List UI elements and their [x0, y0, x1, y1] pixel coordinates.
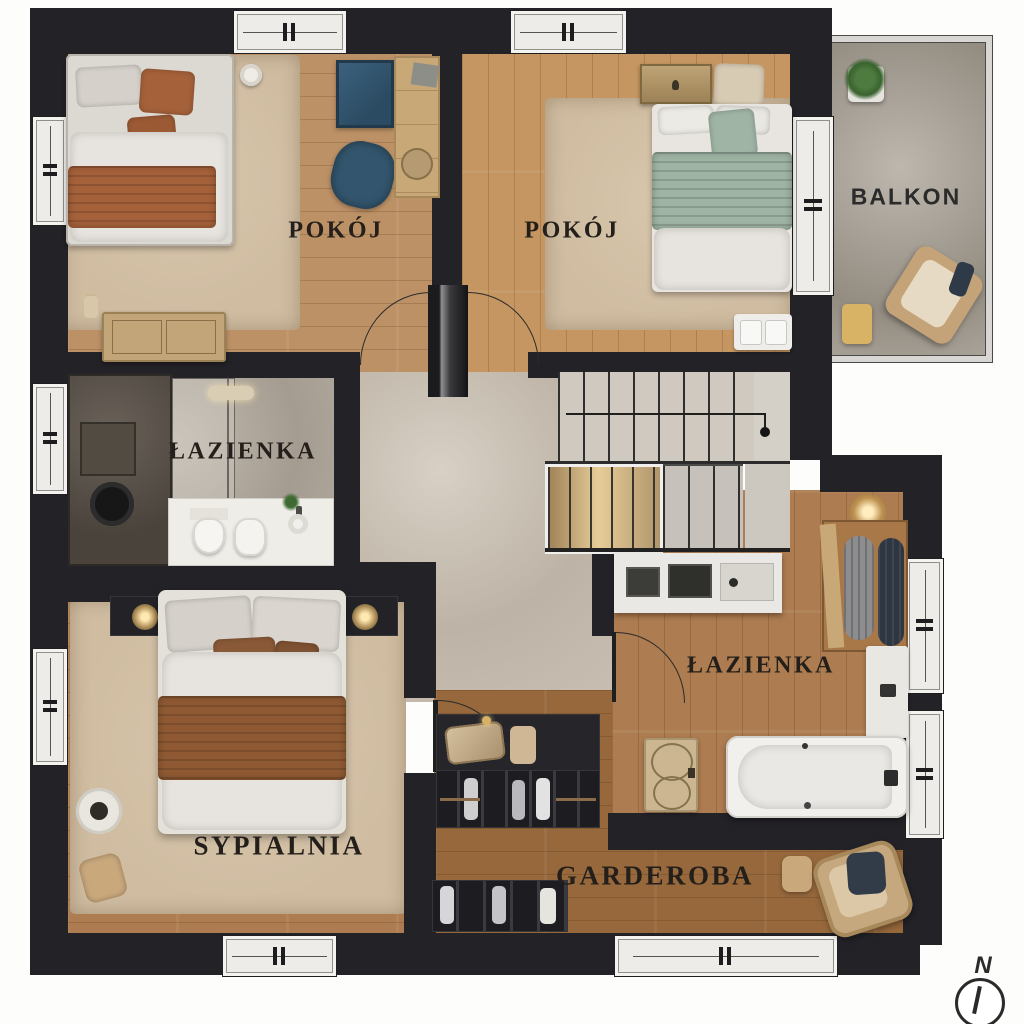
- shelf-plank-line: [556, 798, 596, 801]
- lamp-gold-icon: [132, 604, 158, 630]
- garderoba-vanity: [436, 714, 600, 772]
- pouf-cylinder: [782, 856, 812, 892]
- console-panel-dark-2: [668, 564, 712, 598]
- hanging-clothes-gray: [844, 536, 874, 640]
- stairs-lower-landing: [745, 464, 790, 550]
- balcony-door: [792, 116, 834, 296]
- pillow-rust-1: [139, 68, 196, 116]
- folded-clothes-icon: [440, 886, 454, 924]
- stairs-upper-landing: [754, 372, 790, 462]
- compass-north-label: N: [974, 952, 991, 980]
- window-right-2: [905, 710, 944, 839]
- folded-clothes-icon: [492, 886, 506, 924]
- cup-on-floor: [240, 64, 262, 86]
- wall-bath-right: [334, 372, 360, 578]
- washer-knob-dot: [688, 768, 695, 778]
- plant-icon: [844, 58, 886, 100]
- stairs-lower-flight: [663, 464, 743, 552]
- wardrobe-side-panel: [820, 524, 845, 649]
- blanket-rust: [68, 166, 216, 228]
- ceiling-light: [208, 386, 254, 400]
- armchair-blanket-navy: [846, 851, 887, 896]
- radiator-panel-1: [740, 320, 762, 345]
- room-label-pokoj-left: POKÓJ: [288, 218, 383, 245]
- window-top-1: [233, 10, 347, 54]
- washer-dryer-stack: [644, 738, 698, 812]
- radiator-unit: [734, 314, 792, 350]
- wall-right-lower: [903, 455, 942, 945]
- window-top-2: [510, 10, 627, 54]
- candles: [84, 296, 98, 318]
- bed-single-left: [66, 54, 234, 246]
- dryer-drum-icon: [653, 776, 691, 810]
- floor-tray: [76, 788, 122, 834]
- blanket-sage: [652, 152, 792, 230]
- sink-plant-icon: [282, 492, 300, 512]
- door-leaf-lazienka-right: [612, 632, 616, 702]
- stairs-lower-flight-lit: [545, 464, 663, 554]
- console-dot: [729, 578, 738, 587]
- window-left-3: [32, 648, 68, 766]
- folded-clothes-icon: [536, 778, 550, 820]
- room-label-balkon: BALKON: [851, 184, 961, 211]
- pillow-gray: [75, 64, 143, 107]
- console-white: [614, 553, 782, 613]
- vanity-sink-square: [880, 684, 896, 697]
- stairs-newel-dot: [760, 427, 770, 437]
- bathtub-basin: [738, 745, 892, 809]
- vanity-mirror: [444, 721, 506, 766]
- chair-blanket: [947, 260, 976, 298]
- room-label-pokoj-right: POKÓJ: [524, 218, 619, 245]
- window-right-1: [905, 558, 944, 694]
- window-bottom-2: [614, 935, 838, 977]
- console-panel-dark-1: [626, 567, 660, 597]
- bathtub-faucet-icon: [884, 770, 898, 786]
- radiator-panel-2: [765, 320, 787, 345]
- toilet-bowl: [193, 518, 225, 554]
- shower-tray: [80, 422, 136, 476]
- vanity-stool: [510, 726, 536, 764]
- shower-drain-icon: [90, 482, 134, 526]
- room-label-garderoba: GARDEROBA: [556, 861, 754, 892]
- bathtub-overflow-dot: [802, 743, 808, 749]
- shelf-unit-top: [436, 770, 600, 828]
- decor-mirror-round: [401, 148, 433, 180]
- folded-clothes-icon: [540, 888, 556, 924]
- bathtub: [726, 736, 908, 818]
- tray-bowl: [90, 802, 108, 820]
- balcony-stool: [842, 304, 872, 344]
- lamp-gold-icon: [352, 604, 378, 630]
- bed-single-right: [652, 104, 792, 292]
- toilet: [190, 508, 228, 556]
- room-label-lazienka-top: ŁAZIENKA: [169, 439, 317, 466]
- keyhole-icon: [672, 80, 679, 90]
- bathtub-drain-dot: [804, 802, 811, 809]
- sideboard-brass: [640, 64, 712, 104]
- window-bottom-1: [222, 935, 337, 977]
- stairs-bottom-line: [545, 548, 790, 552]
- hanging-clothes-navy: [878, 538, 904, 646]
- folded-clothes-icon: [512, 780, 525, 820]
- wardrobe-strip: [394, 56, 440, 198]
- desk-shelf-blue: [336, 60, 394, 128]
- dresser-door-left: [112, 320, 162, 354]
- console-panel-light: [720, 563, 774, 601]
- shower-zone: [68, 374, 172, 566]
- floor-plan: POKÓJ POKÓJ BALKON ŁAZIENKA SYPIALNIA ŁA…: [0, 0, 1024, 1024]
- compass-circle-icon: [955, 978, 1005, 1024]
- duvet-foot: [654, 228, 790, 290]
- wall-sypialnia-right-a: [404, 602, 436, 698]
- headboard-cushion: [713, 63, 764, 107]
- window-left-2: [32, 383, 68, 495]
- bed-double: [158, 590, 346, 834]
- room-label-sypialnia: SYPIALNIA: [193, 831, 364, 862]
- blanket-brown: [158, 696, 346, 780]
- stairs-upper-flight: [558, 372, 754, 462]
- pillow-white-1: [657, 105, 714, 136]
- stairs-handrail: [566, 413, 766, 415]
- dresser-door-right: [166, 320, 216, 354]
- wall-top: [30, 8, 830, 54]
- wall-right-step: [820, 455, 915, 492]
- vanity-desk: [866, 646, 908, 738]
- window-left-1: [32, 116, 68, 226]
- compass: N: [948, 950, 1018, 1022]
- vanity-lamp-dot: [482, 716, 491, 725]
- shelf-unit-bottom: [432, 880, 568, 932]
- bidet: [234, 518, 266, 556]
- room-label-lazienka-right: ŁAZIENKA: [687, 653, 835, 680]
- decor-box-gray: [411, 62, 440, 87]
- open-wardrobe: [822, 520, 908, 652]
- shelf-plank-line: [440, 798, 480, 801]
- wall-bath-garderoba: [608, 813, 908, 850]
- lounge-chair: [881, 242, 987, 348]
- toilet-paper-roll: [288, 514, 308, 534]
- wall-door-pillar: [428, 285, 468, 397]
- dresser: [102, 312, 226, 362]
